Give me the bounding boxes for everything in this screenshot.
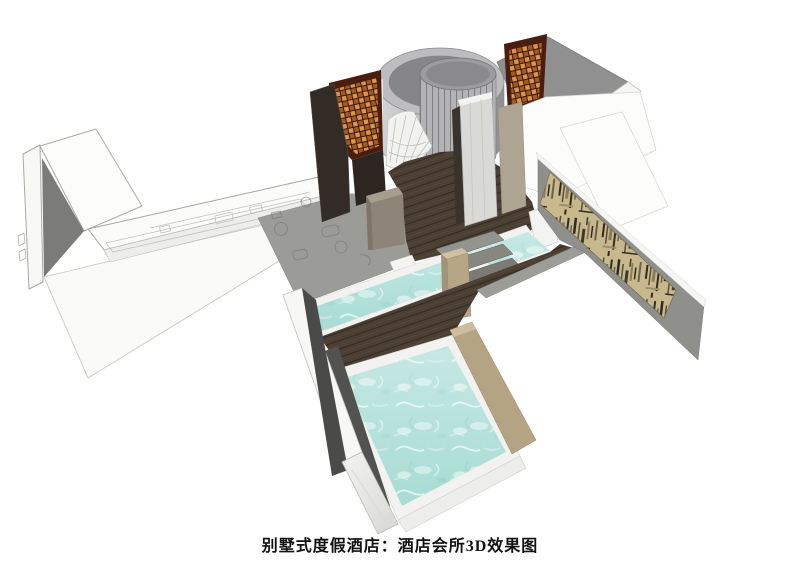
render-page: 别墅式度假酒店：酒店会所3D效果图	[0, 0, 800, 564]
inner-cylinder-hole	[426, 62, 490, 87]
desk-side	[371, 194, 405, 250]
villa-wall-bump	[18, 233, 25, 246]
villa-wall-bump	[19, 249, 26, 261]
stone-slab	[498, 102, 526, 214]
reception-desk	[366, 187, 405, 250]
caption-text: 别墅式度假酒店：酒店会所3D效果图	[0, 532, 800, 556]
render-canvas	[0, 0, 800, 564]
marble-slab	[460, 96, 497, 226]
right-carved-screen	[509, 42, 542, 106]
villa-gable-edge-wall	[23, 145, 43, 289]
